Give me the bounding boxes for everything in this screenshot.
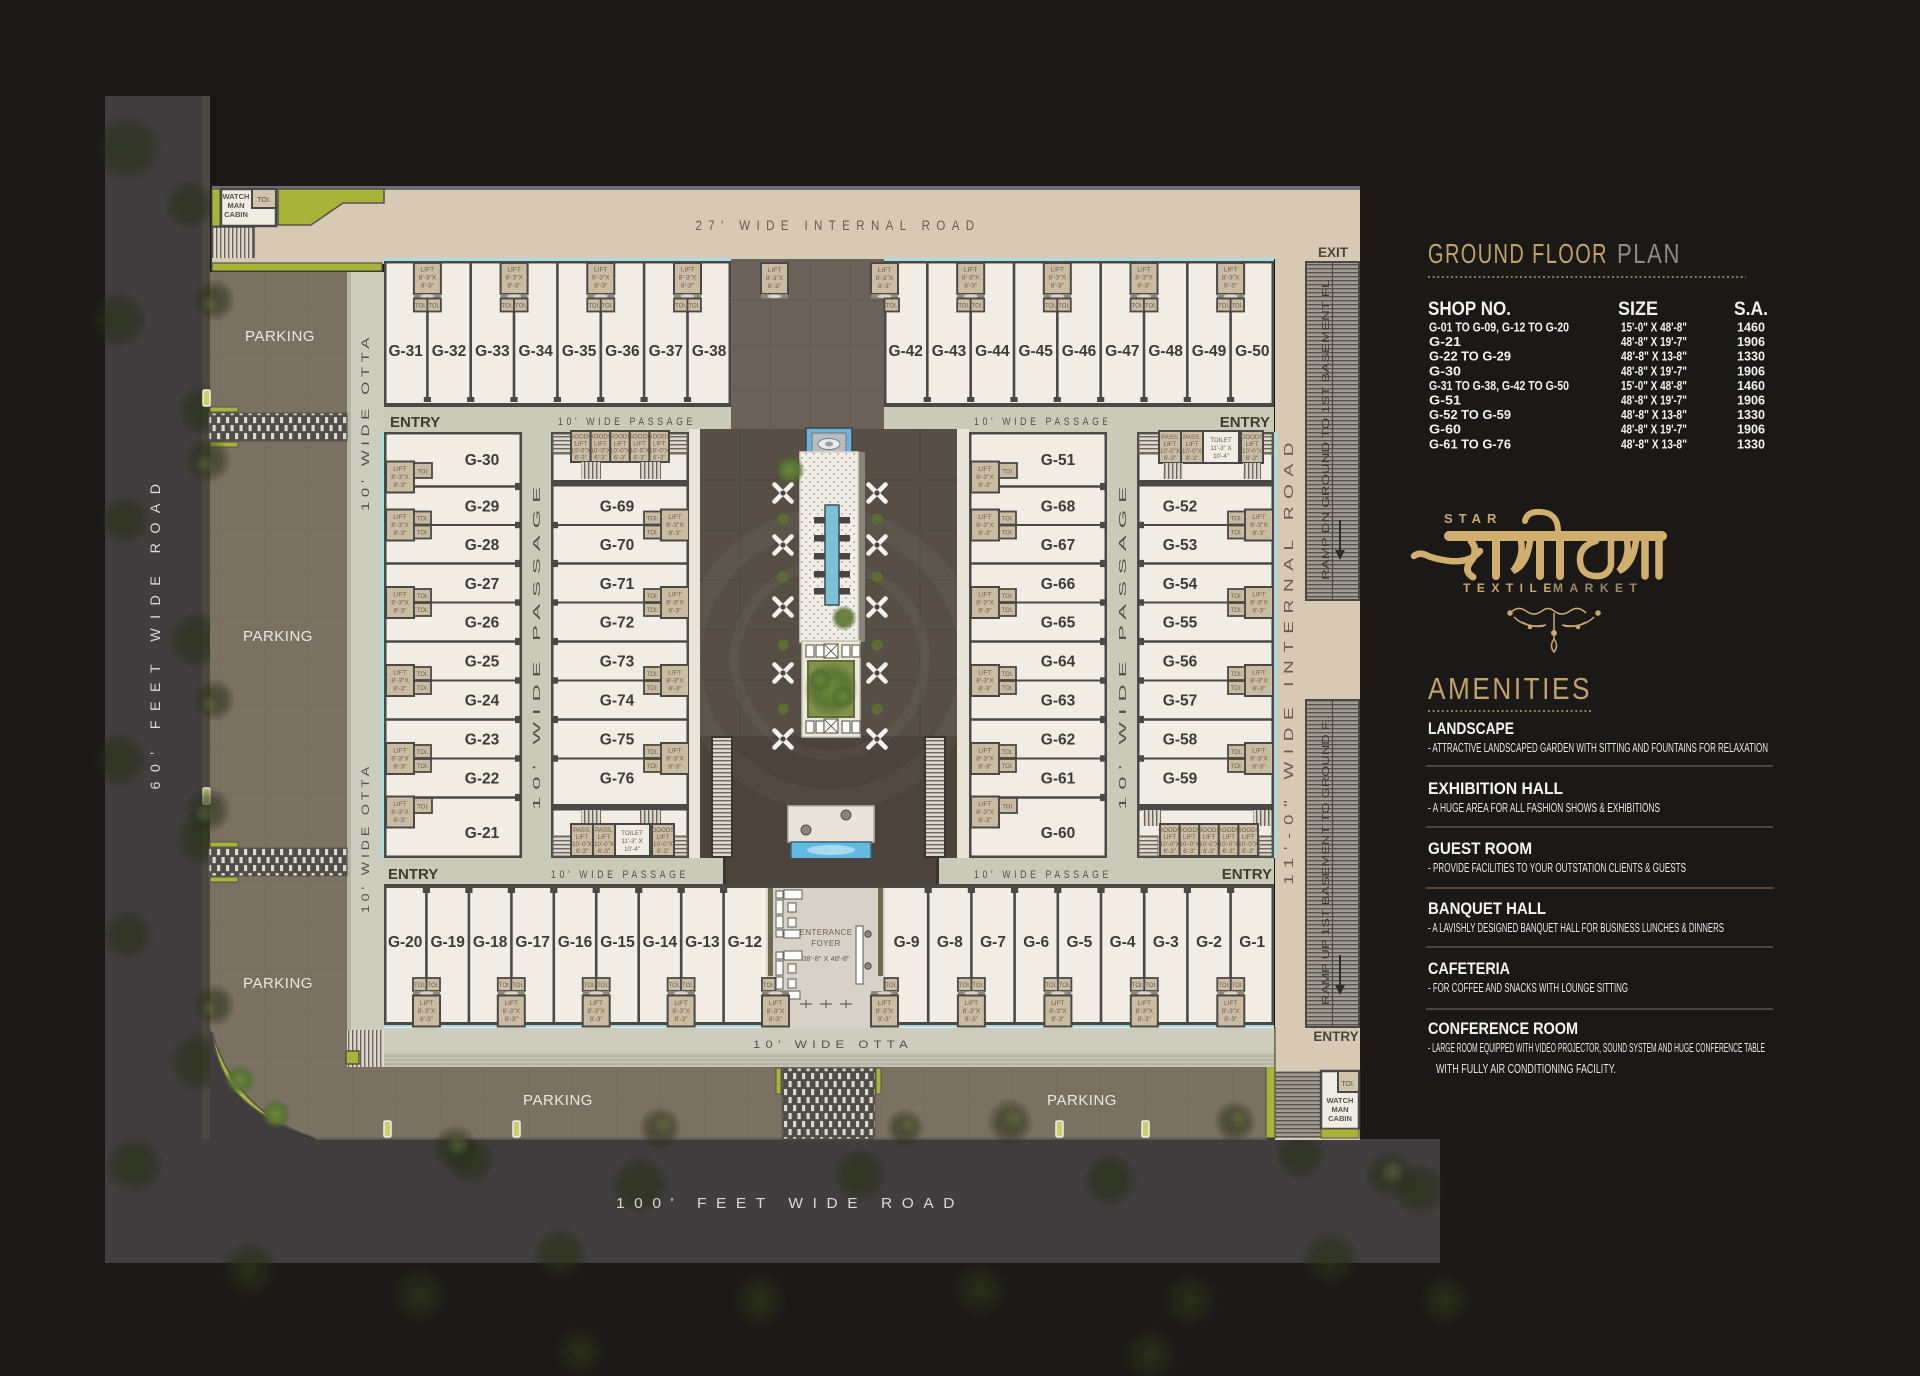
- svg-text:TOI.: TOI.: [499, 983, 511, 989]
- svg-text:8'-3"X: 8'-3"X: [391, 474, 409, 481]
- svg-text:PASS.: PASS.: [573, 827, 591, 834]
- svg-text:8'-3"X: 8'-3"X: [503, 1008, 521, 1015]
- svg-text:G-4: G-4: [1110, 934, 1136, 951]
- svg-text:G-31 TO G-38, G-42 TO G-50: G-31 TO G-38, G-42 TO G-50: [1429, 379, 1569, 393]
- svg-text:G-22: G-22: [465, 771, 499, 788]
- svg-text:PASS.: PASS.: [1183, 434, 1201, 441]
- svg-text:G-54: G-54: [1163, 576, 1198, 593]
- svg-text:8'-3": 8'-3": [393, 764, 407, 771]
- svg-text:LANDSCAPE: LANDSCAPE: [1428, 719, 1514, 738]
- svg-text:G-75: G-75: [600, 732, 635, 749]
- svg-text:WITH FULLY AIR CONDITIONING FA: WITH FULLY AIR CONDITIONING FACILITY.: [1436, 1061, 1616, 1076]
- svg-text:S.A.: S.A.: [1734, 299, 1768, 320]
- svg-text:LIFT: LIFT: [393, 670, 407, 677]
- svg-text:LIFT: LIFT: [668, 592, 682, 599]
- svg-text:G-52: G-52: [1163, 499, 1197, 516]
- svg-text:LIFT: LIFT: [1224, 267, 1238, 274]
- svg-text:8'-3"X: 8'-3"X: [876, 275, 894, 282]
- svg-text:8'-3"X: 8'-3"X: [962, 275, 980, 282]
- svg-text:G-62: G-62: [1041, 732, 1075, 749]
- svg-text:LIFT: LIFT: [668, 514, 682, 521]
- svg-text:LIFT: LIFT: [978, 801, 992, 808]
- svg-text:LIFT: LIFT: [657, 834, 670, 841]
- svg-text:48'-8" X 13-8": 48'-8" X 13-8": [1621, 437, 1687, 451]
- svg-text:8'-3": 8'-3": [965, 1016, 979, 1023]
- svg-text:8'-3": 8'-3": [393, 686, 407, 693]
- svg-text:CABIN: CABIN: [224, 210, 248, 219]
- svg-text:8'-3"X: 8'-3"X: [592, 275, 610, 282]
- svg-text:LIFT: LIFT: [576, 834, 589, 841]
- svg-text:LIFT: LIFT: [1246, 441, 1259, 448]
- svg-text:1330: 1330: [1737, 350, 1765, 364]
- svg-text:10'-0"X: 10'-0"X: [572, 841, 592, 848]
- svg-text:TOI.: TOI.: [597, 983, 609, 989]
- svg-text:8'-3"X: 8'-3"X: [1250, 678, 1268, 685]
- svg-text:TOI.: TOI.: [958, 304, 970, 310]
- svg-text:8'-3": 8'-3": [1137, 283, 1151, 290]
- svg-text:MAN: MAN: [1331, 1105, 1348, 1114]
- svg-text:TOI.: TOI.: [1232, 304, 1244, 310]
- svg-text:TOI.: TOI.: [417, 686, 429, 692]
- svg-text:GOODS: GOODS: [1237, 827, 1260, 834]
- svg-text:G-76: G-76: [600, 771, 635, 788]
- svg-text:10'-4": 10'-4": [624, 846, 640, 853]
- svg-text:8'-3"X: 8'-3"X: [976, 600, 994, 607]
- svg-text:8'-3": 8'-3": [1252, 608, 1266, 615]
- svg-text:PARKING: PARKING: [245, 328, 315, 345]
- svg-text:TOI.: TOI.: [647, 594, 659, 600]
- svg-text:- ATTRACTIVE LANDSCAPED GARDEN: - ATTRACTIVE LANDSCAPED GARDEN WITH SITT…: [1428, 740, 1768, 755]
- svg-text:8'-3": 8'-3": [421, 283, 435, 290]
- svg-text:TOI.: TOI.: [1002, 594, 1014, 600]
- svg-text:10' WIDE OTTA: 10' WIDE OTTA: [360, 763, 372, 913]
- svg-text:6'-3": 6'-3": [1242, 848, 1254, 855]
- svg-text:TOI.: TOI.: [688, 304, 700, 310]
- svg-text:TOI.: TOI.: [675, 304, 687, 310]
- svg-text:TOI.: TOI.: [1002, 764, 1014, 770]
- svg-text:8'-3": 8'-3": [1051, 283, 1065, 290]
- svg-text:TOI.: TOI.: [417, 805, 429, 811]
- svg-text:ENTRY: ENTRY: [1222, 866, 1272, 883]
- svg-text:G-61 TO G-76: G-61 TO G-76: [1429, 437, 1511, 451]
- svg-text:LIFT: LIFT: [1252, 670, 1266, 677]
- svg-text:TOI.: TOI.: [417, 594, 429, 600]
- svg-text:8'-3"X: 8'-3"X: [418, 1008, 436, 1015]
- svg-text:LIFT: LIFT: [507, 267, 521, 274]
- svg-text:10'-0"X: 10'-0"X: [1179, 841, 1199, 848]
- svg-text:10' WIDE OTTA: 10' WIDE OTTA: [360, 333, 372, 511]
- svg-text:1906: 1906: [1737, 364, 1765, 378]
- svg-text:LIFT: LIFT: [978, 670, 992, 677]
- svg-text:G-51: G-51: [1041, 452, 1076, 469]
- svg-text:PASS.: PASS.: [1161, 434, 1179, 441]
- svg-text:1906: 1906: [1737, 423, 1765, 437]
- svg-text:LIFT: LIFT: [1252, 514, 1266, 521]
- svg-text:8'-3"X: 8'-3"X: [505, 275, 523, 282]
- svg-text:LIFT: LIFT: [1051, 267, 1065, 274]
- svg-text:TOI.: TOI.: [417, 608, 429, 614]
- svg-text:LIFT: LIFT: [1137, 267, 1151, 274]
- svg-text:G-48: G-48: [1148, 343, 1183, 360]
- svg-text:LIFT: LIFT: [1203, 834, 1216, 841]
- svg-text:TOI.: TOI.: [512, 983, 524, 989]
- svg-text:8'-3": 8'-3": [978, 686, 992, 693]
- svg-text:TOI.: TOI.: [1231, 517, 1243, 523]
- svg-text:6'-3": 6'-3": [633, 454, 645, 461]
- svg-text:G-18: G-18: [473, 934, 508, 951]
- svg-text:6'-3": 6'-3": [1164, 848, 1176, 855]
- svg-text:11'-3" X: 11'-3" X: [1210, 445, 1231, 452]
- svg-text:G-43: G-43: [932, 343, 967, 360]
- svg-text:TOI.: TOI.: [1002, 805, 1014, 811]
- svg-text:- PROVIDE FACILITIES TO YOUR O: - PROVIDE FACILITIES TO YOUR OUTSTATION …: [1428, 860, 1686, 875]
- svg-text:6'-3": 6'-3": [594, 454, 606, 461]
- svg-text:TOI.: TOI.: [1132, 983, 1144, 989]
- svg-text:SIZE: SIZE: [1618, 299, 1658, 320]
- svg-text:TOI.: TOI.: [1231, 750, 1243, 756]
- svg-text:TOI.: TOI.: [1218, 304, 1230, 310]
- svg-text:6'-3": 6'-3": [598, 848, 610, 855]
- svg-text:8'-3"X: 8'-3"X: [666, 522, 684, 529]
- svg-text:TOI.: TOI.: [886, 304, 898, 310]
- svg-text:TOI.: TOI.: [257, 197, 271, 204]
- svg-text:LIFT: LIFT: [598, 834, 611, 841]
- svg-text:TOILET: TOILET: [621, 830, 643, 837]
- svg-text:60' FEET WIDE ROAD: 60' FEET WIDE ROAD: [148, 475, 163, 790]
- svg-text:1460: 1460: [1737, 321, 1765, 335]
- svg-text:LIFT: LIFT: [393, 801, 407, 808]
- svg-text:10'-0"X: 10'-0"X: [1182, 448, 1202, 455]
- svg-text:TOI.: TOI.: [647, 686, 659, 692]
- svg-text:GOODS: GOODS: [648, 433, 671, 440]
- svg-text:TOI.: TOI.: [584, 983, 596, 989]
- svg-text:- A LAVISHLY DESIGNED BANQUET: - A LAVISHLY DESIGNED BANQUET HALL FOR B…: [1428, 920, 1724, 935]
- svg-text:10' WIDE PASSAGE: 10' WIDE PASSAGE: [974, 869, 1112, 881]
- svg-text:G-22 TO G-29: G-22 TO G-29: [1429, 350, 1511, 364]
- svg-text:G-16: G-16: [558, 934, 593, 951]
- svg-text:6'-3": 6'-3": [1203, 848, 1215, 855]
- svg-text:PARKING: PARKING: [523, 1092, 593, 1109]
- svg-text:G-25: G-25: [465, 654, 500, 671]
- svg-text:8'-3"X: 8'-3"X: [1049, 275, 1067, 282]
- svg-text:TOI.: TOI.: [1002, 470, 1014, 476]
- svg-text:LIFT: LIFT: [421, 267, 435, 274]
- svg-text:LIFT: LIFT: [1186, 441, 1199, 448]
- svg-text:10'-0"X: 10'-0"X: [649, 447, 669, 454]
- svg-text:MAN: MAN: [227, 201, 244, 210]
- svg-text:8'-3": 8'-3": [675, 1016, 689, 1023]
- svg-text:1330: 1330: [1737, 408, 1765, 422]
- svg-text:G-26: G-26: [465, 615, 500, 632]
- svg-text:8'-3": 8'-3": [978, 817, 992, 824]
- svg-text:6'-3": 6'-3": [657, 848, 669, 855]
- svg-text:G-37: G-37: [649, 343, 683, 360]
- svg-text:G-29: G-29: [465, 499, 500, 516]
- svg-text:8'-3"X: 8'-3"X: [976, 756, 994, 763]
- svg-text:8'-3": 8'-3": [978, 530, 992, 537]
- svg-text:G-60: G-60: [1041, 825, 1075, 842]
- svg-text:10'-0"X: 10'-0"X: [590, 447, 610, 454]
- svg-text:6'-3": 6'-3": [1186, 455, 1198, 462]
- svg-text:G-7: G-7: [980, 934, 1006, 951]
- svg-text:G-15: G-15: [600, 934, 635, 951]
- svg-text:48'-8" X 13-8": 48'-8" X 13-8": [1621, 408, 1687, 422]
- svg-text:G-9: G-9: [894, 934, 920, 951]
- svg-text:8'-3": 8'-3": [420, 1016, 434, 1023]
- svg-text:8'-3": 8'-3": [668, 530, 682, 537]
- svg-text:8'-3": 8'-3": [964, 283, 978, 290]
- svg-text:G-52 TO G-59: G-52 TO G-59: [1429, 408, 1511, 422]
- svg-text:TOI.: TOI.: [417, 750, 429, 756]
- svg-text:TOI.: TOI.: [417, 672, 429, 678]
- svg-text:6'-3": 6'-3": [614, 454, 626, 461]
- svg-text:G-44: G-44: [975, 343, 1010, 360]
- svg-text:8'-3": 8'-3": [1138, 1016, 1152, 1023]
- svg-text:8'-3": 8'-3": [590, 1016, 604, 1023]
- svg-text:TOI.: TOI.: [1231, 672, 1243, 678]
- svg-text:LIFT: LIFT: [574, 440, 587, 447]
- svg-text:PARKING: PARKING: [243, 975, 313, 992]
- svg-text:G-30: G-30: [465, 452, 499, 469]
- svg-text:LIFT: LIFT: [393, 592, 407, 599]
- svg-text:G-55: G-55: [1163, 615, 1198, 632]
- svg-text:G-72: G-72: [600, 615, 634, 632]
- svg-text:TOI.: TOI.: [502, 304, 514, 310]
- svg-text:LIFT: LIFT: [978, 748, 992, 755]
- svg-text:8'-3"X: 8'-3"X: [1250, 522, 1268, 529]
- svg-text:10'-0"X: 10'-0"X: [653, 841, 673, 848]
- svg-text:10'-0"X: 10'-0"X: [1219, 841, 1239, 848]
- svg-text:8'-3"X: 8'-3"X: [976, 809, 994, 816]
- svg-text:10'-0"X: 10'-0"X: [1242, 448, 1262, 455]
- svg-text:G-57: G-57: [1163, 693, 1197, 710]
- svg-text:LIFT: LIFT: [768, 267, 782, 274]
- svg-text:10' WIDE PASSAGE: 10' WIDE PASSAGE: [551, 869, 689, 881]
- svg-text:G-1: G-1: [1239, 934, 1265, 951]
- svg-text:6'-3": 6'-3": [1164, 455, 1176, 462]
- svg-text:10' WIDE OTTA: 10' WIDE OTTA: [753, 1039, 913, 1051]
- svg-text:8'-3"X: 8'-3"X: [1136, 1008, 1154, 1015]
- svg-text:8'-3"X: 8'-3"X: [587, 1008, 605, 1015]
- svg-text:TOI.: TOI.: [427, 983, 439, 989]
- svg-text:G-27: G-27: [465, 576, 499, 593]
- svg-text:CAFETERIA: CAFETERIA: [1428, 959, 1510, 978]
- svg-text:- FOR COFFEE AND SNACKS WITH L: - FOR COFFEE AND SNACKS WITH LOUNGE SITT…: [1428, 980, 1628, 995]
- svg-text:TOI.: TOI.: [417, 517, 429, 523]
- svg-text:G-53: G-53: [1163, 537, 1198, 554]
- svg-text:G-68: G-68: [1041, 499, 1076, 516]
- svg-text:8'-3": 8'-3": [1252, 530, 1266, 537]
- svg-text:G-73: G-73: [600, 654, 635, 671]
- svg-text:8'-3": 8'-3": [681, 283, 695, 290]
- svg-text:AMENITIES: AMENITIES: [1428, 671, 1592, 706]
- svg-text:G-8: G-8: [937, 934, 963, 951]
- svg-text:G-66: G-66: [1041, 576, 1076, 593]
- svg-text:PARKING: PARKING: [1047, 1092, 1117, 1109]
- svg-text:38'-8" X 48'-8": 38'-8" X 48'-8": [802, 954, 850, 963]
- svg-text:G-47: G-47: [1105, 343, 1139, 360]
- svg-text:SHOP NO.: SHOP NO.: [1428, 299, 1511, 320]
- svg-text:48'-8" X 19'-7": 48'-8" X 19'-7": [1621, 364, 1687, 378]
- svg-text:TOI.: TOI.: [1231, 764, 1243, 770]
- svg-text:LIFT: LIFT: [1163, 834, 1176, 841]
- svg-text:6'-3": 6'-3": [576, 848, 588, 855]
- svg-text:TOI.: TOI.: [1002, 608, 1014, 614]
- svg-text:TOI.: TOI.: [647, 750, 659, 756]
- svg-text:G-21: G-21: [1429, 335, 1461, 349]
- svg-text:10'-0"X: 10'-0"X: [610, 447, 630, 454]
- svg-text:TOILET: TOILET: [1210, 437, 1232, 444]
- svg-text:TOI.: TOI.: [1341, 1081, 1355, 1088]
- svg-text:TOI.: TOI.: [515, 304, 527, 310]
- svg-text:G-74: G-74: [600, 693, 635, 710]
- svg-text:10'-0"X: 10'-0"X: [571, 447, 591, 454]
- svg-text:LIFT: LIFT: [393, 514, 407, 521]
- svg-text:LIFT: LIFT: [594, 267, 608, 274]
- svg-text:8'-3"X: 8'-3"X: [1222, 275, 1240, 282]
- svg-text:8'-3"X: 8'-3"X: [767, 1008, 785, 1015]
- svg-text:LIFT: LIFT: [668, 748, 682, 755]
- svg-text:TOI.: TOI.: [669, 983, 681, 989]
- svg-text:15'-0" X 48'-8": 15'-0" X 48'-8": [1621, 321, 1687, 335]
- svg-text:8'-3"X: 8'-3"X: [1049, 1008, 1067, 1015]
- svg-text:GOODS: GOODS: [1240, 434, 1263, 441]
- svg-text:WATCH: WATCH: [1327, 1096, 1354, 1105]
- svg-text:MARKET: MARKET: [1553, 581, 1643, 595]
- svg-text:8'-3": 8'-3": [393, 817, 407, 824]
- svg-text:TOI.: TOI.: [959, 983, 971, 989]
- svg-text:TOI.: TOI.: [1231, 531, 1243, 537]
- svg-text:8'-3"X: 8'-3"X: [391, 809, 409, 816]
- svg-text:TOI.: TOI.: [1045, 304, 1057, 310]
- svg-text:8'-3": 8'-3": [393, 530, 407, 537]
- svg-text:G-63: G-63: [1041, 693, 1076, 710]
- svg-text:8'-3": 8'-3": [978, 608, 992, 615]
- svg-text:G-46: G-46: [1062, 343, 1097, 360]
- svg-text:EXIT: EXIT: [1318, 245, 1349, 260]
- svg-text:PASS.: PASS.: [595, 827, 613, 834]
- svg-text:TOI.: TOI.: [417, 764, 429, 770]
- svg-text:TOI.: TOI.: [972, 304, 984, 310]
- svg-text:G-17: G-17: [515, 934, 549, 951]
- svg-text:8'-3": 8'-3": [1252, 764, 1266, 771]
- svg-text:8'-3": 8'-3": [978, 482, 992, 489]
- svg-text:48'-8" X 13-8": 48'-8" X 13-8": [1621, 350, 1687, 364]
- svg-text:8'-3": 8'-3": [393, 482, 407, 489]
- svg-text:TOI.: TOI.: [428, 304, 440, 310]
- svg-text:TOI.: TOI.: [647, 531, 659, 537]
- svg-text:8'-3"X: 8'-3"X: [976, 474, 994, 481]
- svg-text:48'-8" X 19'-7": 48'-8" X 19'-7": [1621, 335, 1687, 349]
- svg-text:FOYER: FOYER: [811, 939, 841, 948]
- svg-text:TOI.: TOI.: [647, 608, 659, 614]
- svg-text:8'-3"X: 8'-3"X: [391, 678, 409, 685]
- svg-text:10'-0"X: 10'-0"X: [1238, 841, 1258, 848]
- svg-text:G-70: G-70: [600, 537, 634, 554]
- svg-text:TOI.: TOI.: [1058, 304, 1070, 310]
- svg-text:LIFT: LIFT: [1222, 834, 1235, 841]
- svg-text:8'-3"X: 8'-3"X: [391, 756, 409, 763]
- svg-text:G-33: G-33: [475, 343, 510, 360]
- svg-text:GUEST ROOM: GUEST ROOM: [1428, 839, 1532, 858]
- svg-text:6'-3": 6'-3": [575, 454, 587, 461]
- svg-text:LIFT: LIFT: [1051, 1000, 1065, 1007]
- svg-text:LIFT: LIFT: [964, 267, 978, 274]
- svg-text:15'-0" X 48'-8": 15'-0" X 48'-8": [1621, 379, 1687, 393]
- svg-text:8'-3": 8'-3": [769, 1016, 783, 1023]
- svg-text:G-19: G-19: [430, 934, 465, 951]
- svg-text:8'-3": 8'-3": [508, 283, 522, 290]
- svg-text:STAR: STAR: [1444, 511, 1502, 526]
- svg-text:TEXTILE: TEXTILE: [1463, 581, 1558, 595]
- svg-text:G-14: G-14: [643, 934, 678, 951]
- svg-text:LIFT: LIFT: [965, 1000, 979, 1007]
- svg-text:TOI.: TOI.: [1232, 983, 1244, 989]
- svg-text:8'-3"X: 8'-3"X: [1250, 600, 1268, 607]
- svg-text:G-51: G-51: [1429, 394, 1461, 408]
- svg-text:TOI.: TOI.: [588, 304, 600, 310]
- svg-text:LIFT: LIFT: [878, 267, 892, 274]
- svg-text:GROUND FLOOR: GROUND FLOOR: [1428, 238, 1608, 269]
- svg-text:TOI.: TOI.: [1002, 750, 1014, 756]
- svg-text:TOI.: TOI.: [647, 517, 659, 523]
- svg-text:TOI.: TOI.: [415, 304, 427, 310]
- svg-text:TOI.: TOI.: [647, 764, 659, 770]
- svg-text:G-45: G-45: [1018, 343, 1053, 360]
- svg-text:TOI.: TOI.: [417, 470, 429, 476]
- svg-text:LIFT: LIFT: [769, 1000, 783, 1007]
- svg-text:8'-3": 8'-3": [1224, 283, 1238, 290]
- svg-text:G-59: G-59: [1163, 771, 1198, 788]
- svg-text:G-01 TO G-09, G-12 TO G-20: G-01 TO G-09, G-12 TO G-20: [1429, 321, 1569, 335]
- svg-text:ENTERANCE: ENTERANCE: [800, 928, 853, 937]
- svg-text:- LARGE ROOM EQUIPPED WITH VID: - LARGE ROOM EQUIPPED WITH VIDEO PROJECT…: [1428, 1040, 1765, 1055]
- svg-text:- A HUGE AREA FOR ALL FASHION: - A HUGE AREA FOR ALL FASHION SHOWS & EX…: [1428, 800, 1660, 815]
- svg-text:8'-3"X: 8'-3"X: [1135, 275, 1153, 282]
- svg-text:G-38: G-38: [692, 343, 727, 360]
- svg-text:LIFT: LIFT: [653, 440, 666, 447]
- svg-text:11'-0" WIDE INTERNAL ROAD: 11'-0" WIDE INTERNAL ROAD: [1282, 435, 1296, 885]
- svg-text:1330: 1330: [1737, 437, 1765, 451]
- svg-text:G-13: G-13: [685, 934, 720, 951]
- svg-text:8'-3": 8'-3": [878, 1016, 892, 1023]
- svg-text:8'-3": 8'-3": [1252, 686, 1266, 693]
- svg-text:8'-3"X: 8'-3"X: [963, 1008, 981, 1015]
- svg-text:8'-3"X: 8'-3"X: [876, 1008, 894, 1015]
- svg-text:TOI.: TOI.: [682, 983, 694, 989]
- svg-text:G-5: G-5: [1066, 934, 1092, 951]
- svg-text:CABIN: CABIN: [1328, 1114, 1352, 1123]
- svg-text:G-64: G-64: [1041, 654, 1076, 671]
- svg-text:10'-0"X: 10'-0"X: [630, 447, 650, 454]
- svg-text:10' WIDE PASSAGE: 10' WIDE PASSAGE: [974, 416, 1112, 428]
- svg-text:LIFT: LIFT: [505, 1000, 519, 1007]
- svg-text:LIFT: LIFT: [1252, 748, 1266, 755]
- svg-text:TOI.: TOI.: [1145, 983, 1157, 989]
- svg-text:6'-3": 6'-3": [1246, 455, 1258, 462]
- svg-text:LIFT: LIFT: [633, 440, 646, 447]
- svg-text:WATCH: WATCH: [223, 192, 250, 201]
- svg-text:LIFT: LIFT: [1183, 834, 1196, 841]
- svg-text:G-71: G-71: [600, 576, 635, 593]
- svg-text:G-30: G-30: [1429, 364, 1461, 378]
- svg-text:G-34: G-34: [518, 343, 553, 360]
- svg-text:TOI.: TOI.: [417, 531, 429, 537]
- svg-text:TOI.: TOI.: [1231, 608, 1243, 614]
- svg-text:8'-3": 8'-3": [505, 1016, 519, 1023]
- svg-text:8'-3": 8'-3": [1051, 1016, 1065, 1023]
- svg-text:8'-3": 8'-3": [668, 608, 682, 615]
